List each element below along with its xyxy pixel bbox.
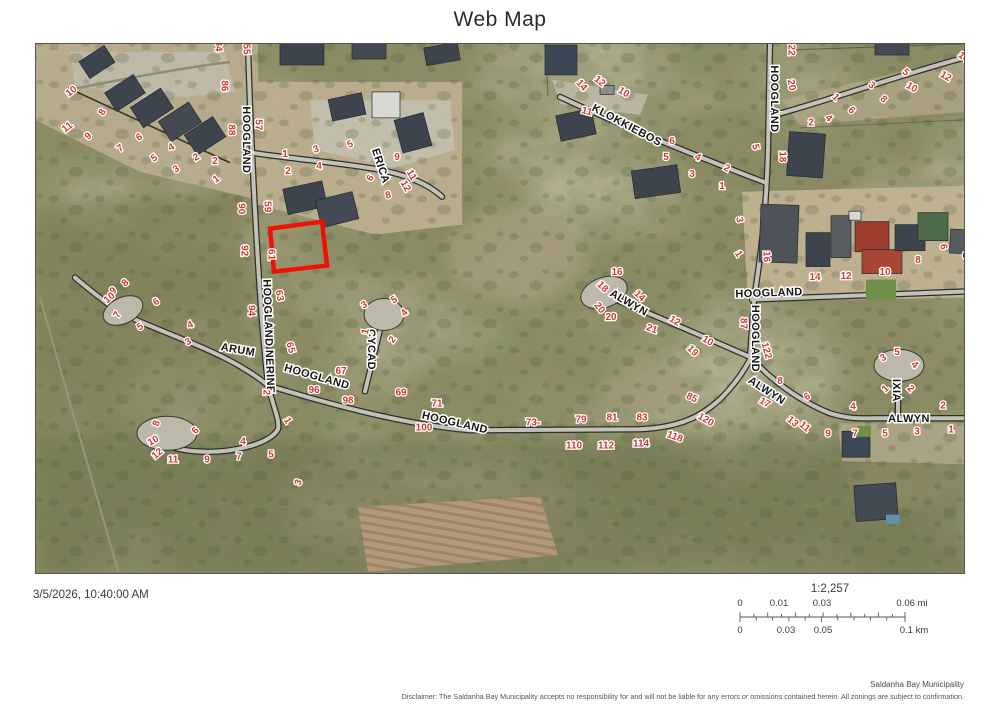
parcel-number-label: 8 (915, 255, 921, 266)
street-name-label: HOOGLAND (240, 106, 252, 173)
attribution: Saldanha Bay Municipality (870, 680, 964, 689)
scale-km-label: 0 (737, 625, 742, 636)
scale-km-label: 0.05 (814, 625, 833, 636)
web-map-export-page: Web Map (0, 0, 1000, 707)
parcel-number-label: 11 (168, 455, 179, 466)
parcel-number-label: 2 (261, 390, 272, 396)
parcel-number-label: 5 (663, 152, 669, 163)
parcel-number-label: 8 (777, 376, 783, 387)
page-title: Web Map (0, 8, 1000, 32)
parcel-number-label: 55 (241, 43, 252, 55)
parcel-number-label: 90 (236, 203, 247, 215)
parcel-number-label: 83 (636, 413, 648, 424)
parcel-number-label: 110 (566, 441, 583, 452)
parcel-number-label: 4 (850, 402, 856, 413)
map-canvas: HOOGLANDERICAKLOKKIEBOSHOOGLANDHOOGLANDH… (35, 43, 965, 574)
parcel-number-label: 16 (761, 251, 772, 263)
parcel-number-label: 112 (598, 441, 615, 452)
parcel-number-label: 2 (940, 401, 946, 412)
parcel-number-label: 71 (431, 399, 443, 410)
disclaimer-text: Disclaimer: The Saldanha Bay Municipalit… (402, 692, 964, 701)
parcel-number-label: 5 (882, 429, 888, 440)
parcel-number-label: 10 (879, 267, 891, 278)
parcel-number-label: 3 (689, 169, 695, 180)
scale-bar (730, 608, 970, 628)
parcel-number-label: 18 (777, 151, 788, 163)
parcel-number-label: 12 (840, 271, 852, 282)
parcel-number-label: 114 (633, 439, 650, 450)
scale-mi-label: 0.06 mi (896, 598, 927, 609)
parcel-number-label: 84 (213, 43, 224, 52)
scale-mi-label: 0.01 (770, 598, 789, 609)
scale-mi-label: 0 (737, 598, 742, 609)
parcel-number-label: 1 (282, 149, 288, 160)
parcel-number-label: 88 (226, 124, 237, 136)
parcel-number-label: 100 (416, 423, 433, 434)
scale-mi-label: 0.03 (813, 598, 832, 609)
street-name-label: HOOGLAND (735, 286, 803, 300)
street-name-label: ALWYN (888, 413, 930, 425)
parcel-number-label: 87 (738, 318, 749, 330)
parcel-number-label: 2 (212, 156, 218, 167)
parcel-number-label: 57 (253, 119, 264, 131)
parcel-number-label: 92 (239, 245, 250, 257)
parcel-number-label: 81 (606, 413, 618, 424)
nerine-culdesac (137, 416, 197, 450)
scale-km-label: 0.1 km (900, 625, 929, 636)
parcel-number-label: 1 (719, 181, 725, 192)
scale-ratio: 1:2,257 (745, 583, 915, 595)
parcel-number-label: 4 (316, 161, 322, 172)
parcel-number-label: 16 (611, 267, 623, 278)
parcel-number-label: 5 (268, 450, 274, 461)
parcel-number-label: 5 (894, 347, 900, 358)
scale-km-label: 0.03 (777, 625, 796, 636)
parcel-number-label: 22 (786, 44, 797, 56)
parcel-number-label: 4 (240, 437, 246, 448)
parcel-number-label: 7 (852, 429, 858, 440)
parcel-number-label: 67 (335, 366, 347, 377)
street-name-label: HOOGLAND (768, 65, 780, 132)
parcel-number-label: 98 (342, 396, 354, 407)
timestamp: 3/5/2026, 10:40:00 AM (33, 589, 149, 601)
street-name-label: HOOGLAND (749, 305, 761, 372)
parcel-number-label: 6 (669, 136, 675, 147)
parcel-number-label: 96 (308, 385, 320, 396)
parcel-number-label: 9 (204, 455, 210, 466)
street-name-label: IXIA (890, 379, 902, 402)
parcel-number-label: 9 (825, 429, 831, 440)
parcel-number-label: 20 (605, 312, 617, 323)
parcel-number-label: 2 (285, 166, 291, 177)
parcel-number-label: 86 (219, 80, 230, 92)
parcel-number-label: 79 (575, 415, 587, 426)
parcel-number-label: 61 (266, 249, 277, 261)
parcel-number-label: 3 (914, 427, 920, 438)
parcel-number-label: 59 (262, 201, 273, 213)
parcel-number-label: 73- (526, 418, 540, 429)
parcel-number-label: 7 (236, 452, 242, 463)
parcel-number-label: 1 (948, 425, 954, 436)
parcel-number-label: 94 (246, 305, 257, 317)
parcel-number-label: 9 (394, 152, 400, 163)
parcel-number-label: 2 (808, 117, 814, 128)
parcel-number-label: 69 (395, 388, 407, 399)
parcel-number-label: 14 (809, 272, 821, 283)
